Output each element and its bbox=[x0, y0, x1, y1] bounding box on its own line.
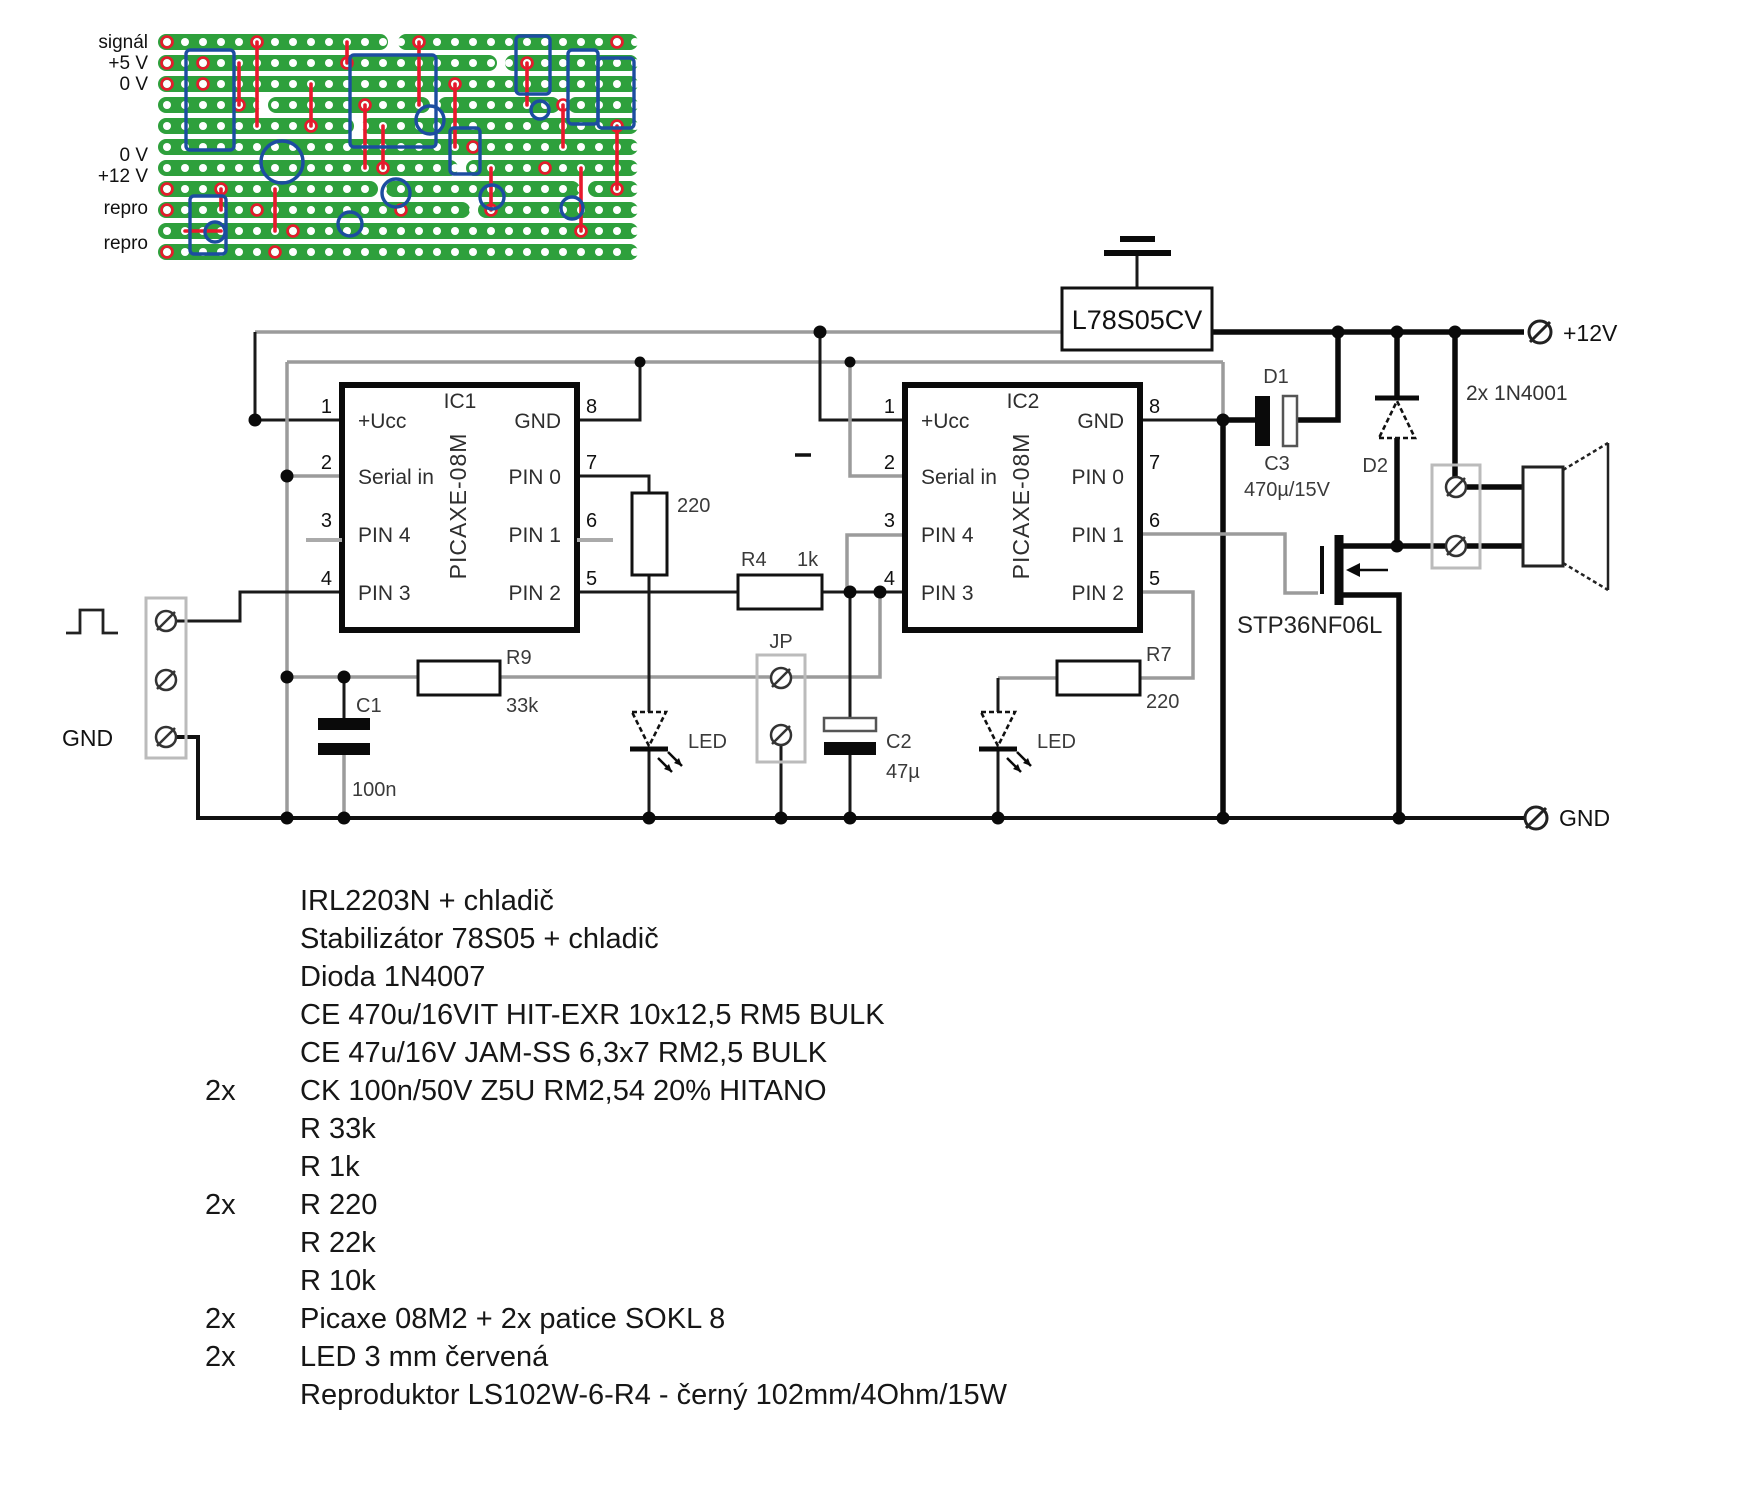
ic2-pin3-number: 3 bbox=[884, 510, 895, 532]
c3-ref: C3 bbox=[1264, 453, 1290, 475]
ic1-pin5-number: 5 bbox=[586, 568, 597, 590]
ic2-pin2-number: 2 bbox=[884, 452, 895, 474]
capacitor-c3: D1 C3 470µ/15V bbox=[1244, 366, 1331, 501]
ic2-gnd-label: GND bbox=[1077, 410, 1124, 433]
r7-value: 220 bbox=[1146, 691, 1179, 713]
terminal-gnd: GND bbox=[1525, 805, 1610, 831]
voltage-regulator: L78S05CV bbox=[1062, 239, 1212, 350]
led1: LED bbox=[630, 712, 727, 772]
c3-value: 470µ/15V bbox=[1244, 479, 1331, 501]
c1-value: 100n bbox=[352, 779, 397, 801]
ic2-pin0-label: PIN 0 bbox=[1071, 466, 1124, 489]
board-label-0v-a: 0 V bbox=[119, 74, 148, 95]
ic2-pin1-label: PIN 1 bbox=[1071, 524, 1124, 547]
led2: LED bbox=[979, 712, 1076, 772]
ic2-title: IC2 bbox=[1007, 390, 1040, 413]
speaker-icon bbox=[1523, 443, 1608, 590]
mosfet-label: STP36NF06L bbox=[1237, 612, 1382, 639]
led1-label: LED bbox=[688, 731, 727, 753]
ic2-pin6-number: 6 bbox=[1149, 510, 1160, 532]
part-desc: IRL2203N + chladič bbox=[300, 885, 554, 917]
part-qty: 2x bbox=[205, 1075, 236, 1107]
ic1-pin7-number: 7 bbox=[586, 452, 597, 474]
part-desc: R 220 bbox=[300, 1189, 377, 1221]
speaker-connector bbox=[1432, 465, 1480, 568]
input-terminal-icon bbox=[156, 727, 176, 747]
terminal-gnd-label: GND bbox=[1559, 805, 1610, 831]
part-desc: CK 100n/50V Z5U RM2,54 20% HITANO bbox=[300, 1075, 827, 1107]
r4-value: 1k bbox=[797, 549, 819, 571]
part-desc: R 33k bbox=[300, 1113, 376, 1145]
ic1-ucc-label: +Ucc bbox=[358, 410, 406, 433]
ic1-serial-label: Serial in bbox=[358, 466, 434, 489]
jp-label: JP bbox=[769, 631, 792, 653]
diode-d2: D2 2x 1N4001 bbox=[1362, 382, 1567, 477]
ic1-pin3-label: PIN 3 bbox=[358, 582, 411, 605]
speaker-terminal-icon bbox=[1446, 536, 1466, 556]
ic2-pin4-number: 4 bbox=[884, 568, 895, 590]
ic2-pin3-label: PIN 3 bbox=[921, 582, 974, 605]
resistor-r9: R9 33k bbox=[418, 647, 539, 717]
ic2-pin1-number: 1 bbox=[884, 396, 895, 418]
part-desc: Stabilizátor 78S05 + chladič bbox=[300, 923, 659, 955]
ic1-chip-name: PICAXE-08M bbox=[445, 433, 471, 580]
pulse-signal-icon bbox=[66, 610, 118, 633]
part-desc: R 10k bbox=[300, 1265, 376, 1297]
board-label-repro-b: repro bbox=[104, 233, 148, 254]
part-desc: R 1k bbox=[300, 1151, 360, 1183]
ic1-pin3-number: 3 bbox=[321, 510, 332, 532]
ic2-chip-name: PICAXE-08M bbox=[1008, 433, 1034, 580]
ic2-pin8-number: 8 bbox=[1149, 396, 1160, 418]
ic1-pin1-label: PIN 1 bbox=[508, 524, 561, 547]
ic2-ucc-label: +Ucc bbox=[921, 410, 969, 433]
jp-terminal-icon bbox=[771, 668, 791, 688]
led2-label: LED bbox=[1037, 731, 1076, 753]
ic1-pin0-label: PIN 0 bbox=[508, 466, 561, 489]
part-qty: 2x bbox=[205, 1341, 236, 1373]
part-desc: R 22k bbox=[300, 1227, 376, 1259]
part-qty: 2x bbox=[205, 1189, 236, 1221]
c2-ref: C2 bbox=[886, 731, 912, 753]
part-desc: LED 3 mm červená bbox=[300, 1341, 549, 1373]
ic1-pin4-number: 4 bbox=[321, 568, 332, 590]
capacitor-c1: C1 100n bbox=[318, 695, 397, 801]
jp-terminal-icon bbox=[771, 725, 791, 745]
ic2-serial-label: Serial in bbox=[921, 466, 997, 489]
ic2-pin2-label: PIN 2 bbox=[1071, 582, 1124, 605]
ic1-pin6-number: 6 bbox=[586, 510, 597, 532]
board-label-12v: +12 V bbox=[98, 166, 149, 187]
regulator-label: L78S05CV bbox=[1072, 305, 1203, 335]
ic1-pin1-number: 1 bbox=[321, 396, 332, 418]
c1-ref: C1 bbox=[356, 695, 382, 717]
mosfet-stp36nf06l: STP36NF06L bbox=[1237, 535, 1388, 639]
resistor-r4: R4 1k bbox=[738, 549, 822, 609]
part-desc: CE 47u/16V JAM-SS 6,3x7 RM2,5 BULK bbox=[300, 1037, 828, 1069]
ic1-pin8-number: 8 bbox=[586, 396, 597, 418]
stripboard-labels: signál +5 V 0 V 0 V +12 V repro repro bbox=[98, 32, 149, 254]
d1-ref: D1 bbox=[1263, 366, 1289, 388]
board-label-0v-b: 0 V bbox=[119, 145, 148, 166]
diodes-note: 2x 1N4001 bbox=[1466, 382, 1568, 405]
input-terminal-icon bbox=[156, 670, 176, 690]
board-label-5v: +5 V bbox=[108, 53, 148, 74]
r9-ref: R9 bbox=[506, 647, 532, 669]
part-qty: 2x bbox=[205, 1303, 236, 1335]
ic2-pin4-label: PIN 4 bbox=[921, 524, 974, 547]
c2-value: 47µ bbox=[886, 761, 920, 783]
r4-ref: R4 bbox=[741, 549, 767, 571]
input-gnd-label: GND bbox=[62, 725, 113, 751]
board-label-repro-a: repro bbox=[104, 198, 148, 219]
capacitor-c2: C2 47µ bbox=[824, 718, 920, 783]
r9-value: 33k bbox=[506, 695, 539, 717]
resistor-220-vertical: 220 bbox=[632, 493, 710, 575]
part-desc: Reproduktor LS102W-6-R4 - černý 102mm/4O… bbox=[300, 1379, 1008, 1411]
circuit-diagram: signál +5 V 0 V 0 V +12 V repro repro bbox=[0, 0, 1743, 1500]
input-connector: GND bbox=[62, 598, 186, 758]
ic1-picaxe: IC1 1 2 3 4 8 7 6 5 +Ucc Serial in PIN 4… bbox=[306, 385, 613, 630]
board-label-signal: signál bbox=[98, 32, 148, 53]
terminal-12v-label: +12V bbox=[1563, 320, 1618, 346]
part-desc: CE 470u/16VIT HIT-EXR 10x12,5 RM5 BULK bbox=[300, 999, 885, 1031]
ic1-gnd-label: GND bbox=[514, 410, 561, 433]
ic1-pin4-label: PIN 4 bbox=[358, 524, 411, 547]
part-desc: Picaxe 08M2 + 2x patice SOKL 8 bbox=[300, 1303, 725, 1335]
terminal-12v: +12V bbox=[1529, 320, 1618, 346]
screenshot-root: signál +5 V 0 V 0 V +12 V repro repro bbox=[0, 0, 1743, 1500]
ic1-title: IC1 bbox=[444, 390, 477, 413]
stripboard-art: signál +5 V 0 V 0 V +12 V repro repro bbox=[98, 32, 638, 260]
ic1-pin2-number: 2 bbox=[321, 452, 332, 474]
ic2-pin7-number: 7 bbox=[1149, 452, 1160, 474]
speaker-terminal-icon bbox=[1446, 477, 1466, 497]
resistor-220-value: 220 bbox=[677, 495, 710, 517]
ic1-pin2-label: PIN 2 bbox=[508, 582, 561, 605]
input-terminal-icon bbox=[156, 611, 176, 631]
part-desc: Dioda 1N4007 bbox=[300, 961, 485, 993]
d2-ref: D2 bbox=[1362, 455, 1388, 477]
jumper-jp: JP bbox=[757, 631, 805, 762]
r7-ref: R7 bbox=[1146, 644, 1172, 666]
ic2-pin5-number: 5 bbox=[1149, 568, 1160, 590]
parts-list: IRL2203N + chladič Stabilizátor 78S05 + … bbox=[205, 885, 1008, 1411]
